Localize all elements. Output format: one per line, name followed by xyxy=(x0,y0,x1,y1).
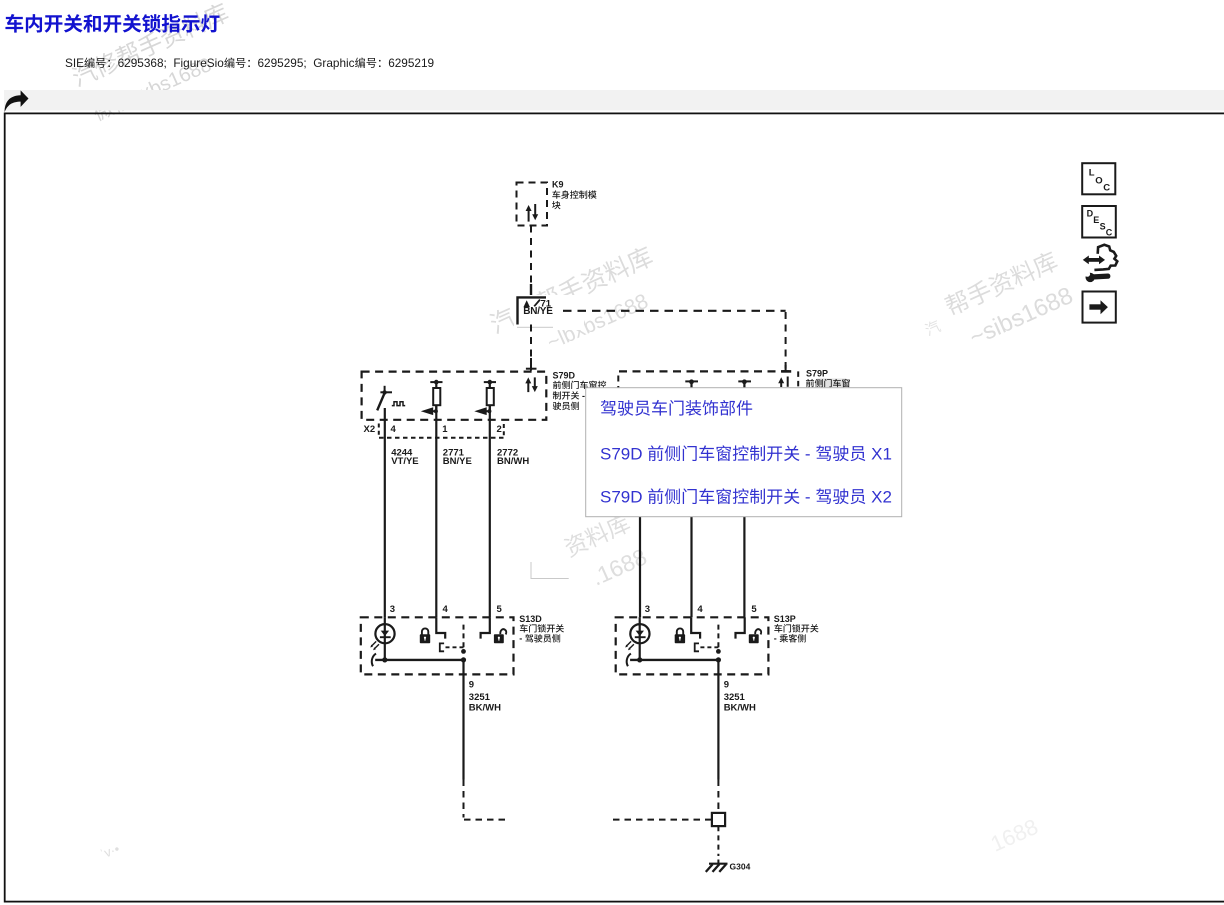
svg-text:BN/YE: BN/YE xyxy=(523,306,553,317)
svg-text:5: 5 xyxy=(497,604,503,615)
svg-text:S79D: S79D xyxy=(600,488,647,507)
svg-text:L: L xyxy=(1089,167,1095,178)
svg-text:-: - xyxy=(519,634,525,644)
svg-text:S13D: S13D xyxy=(519,614,542,624)
svg-text:VT/YE: VT/YE xyxy=(391,456,418,467)
svg-text:BK/WH: BK/WH xyxy=(469,703,501,714)
svg-text:2: 2 xyxy=(497,424,502,435)
svg-text:6295295; Graphic: 6295295; Graphic xyxy=(258,56,355,70)
svg-text:9: 9 xyxy=(724,679,729,690)
svg-text:-: - xyxy=(774,634,780,644)
svg-text:S79D: S79D xyxy=(600,445,647,464)
svg-text:-: - xyxy=(800,488,815,507)
svg-text:G304: G304 xyxy=(730,861,751,871)
svg-text:9: 9 xyxy=(469,679,474,690)
svg-text:SIE: SIE xyxy=(65,56,84,70)
svg-text:E: E xyxy=(1093,215,1099,225)
svg-text:BN/YE: BN/YE xyxy=(443,456,472,467)
svg-text:4: 4 xyxy=(697,604,703,615)
svg-text:4: 4 xyxy=(443,604,449,615)
svg-text:C: C xyxy=(1106,228,1113,238)
svg-text:5: 5 xyxy=(751,604,757,615)
svg-text:BK/WH: BK/WH xyxy=(724,703,756,714)
svg-text:3: 3 xyxy=(390,604,395,615)
svg-text:6295219: 6295219 xyxy=(388,56,434,70)
svg-text:X1: X1 xyxy=(866,445,892,464)
svg-text:S: S xyxy=(1100,221,1106,231)
svg-text:3: 3 xyxy=(645,604,650,615)
svg-text:S13P: S13P xyxy=(774,614,796,624)
svg-text:1: 1 xyxy=(442,424,448,435)
svg-text:K9: K9 xyxy=(552,180,564,190)
svg-text:X2: X2 xyxy=(866,488,892,507)
svg-text:BN/WH: BN/WH xyxy=(497,456,529,467)
svg-text:C: C xyxy=(1103,182,1110,193)
svg-text:-: - xyxy=(800,445,815,464)
svg-text:X2: X2 xyxy=(364,424,376,435)
svg-text:4: 4 xyxy=(391,424,397,435)
svg-text:S79D: S79D xyxy=(553,370,576,380)
svg-text:S79P: S79P xyxy=(806,369,828,379)
svg-text:O: O xyxy=(1095,175,1102,186)
svg-text:6295368; FigureSio: 6295368; FigureSio xyxy=(118,56,225,70)
